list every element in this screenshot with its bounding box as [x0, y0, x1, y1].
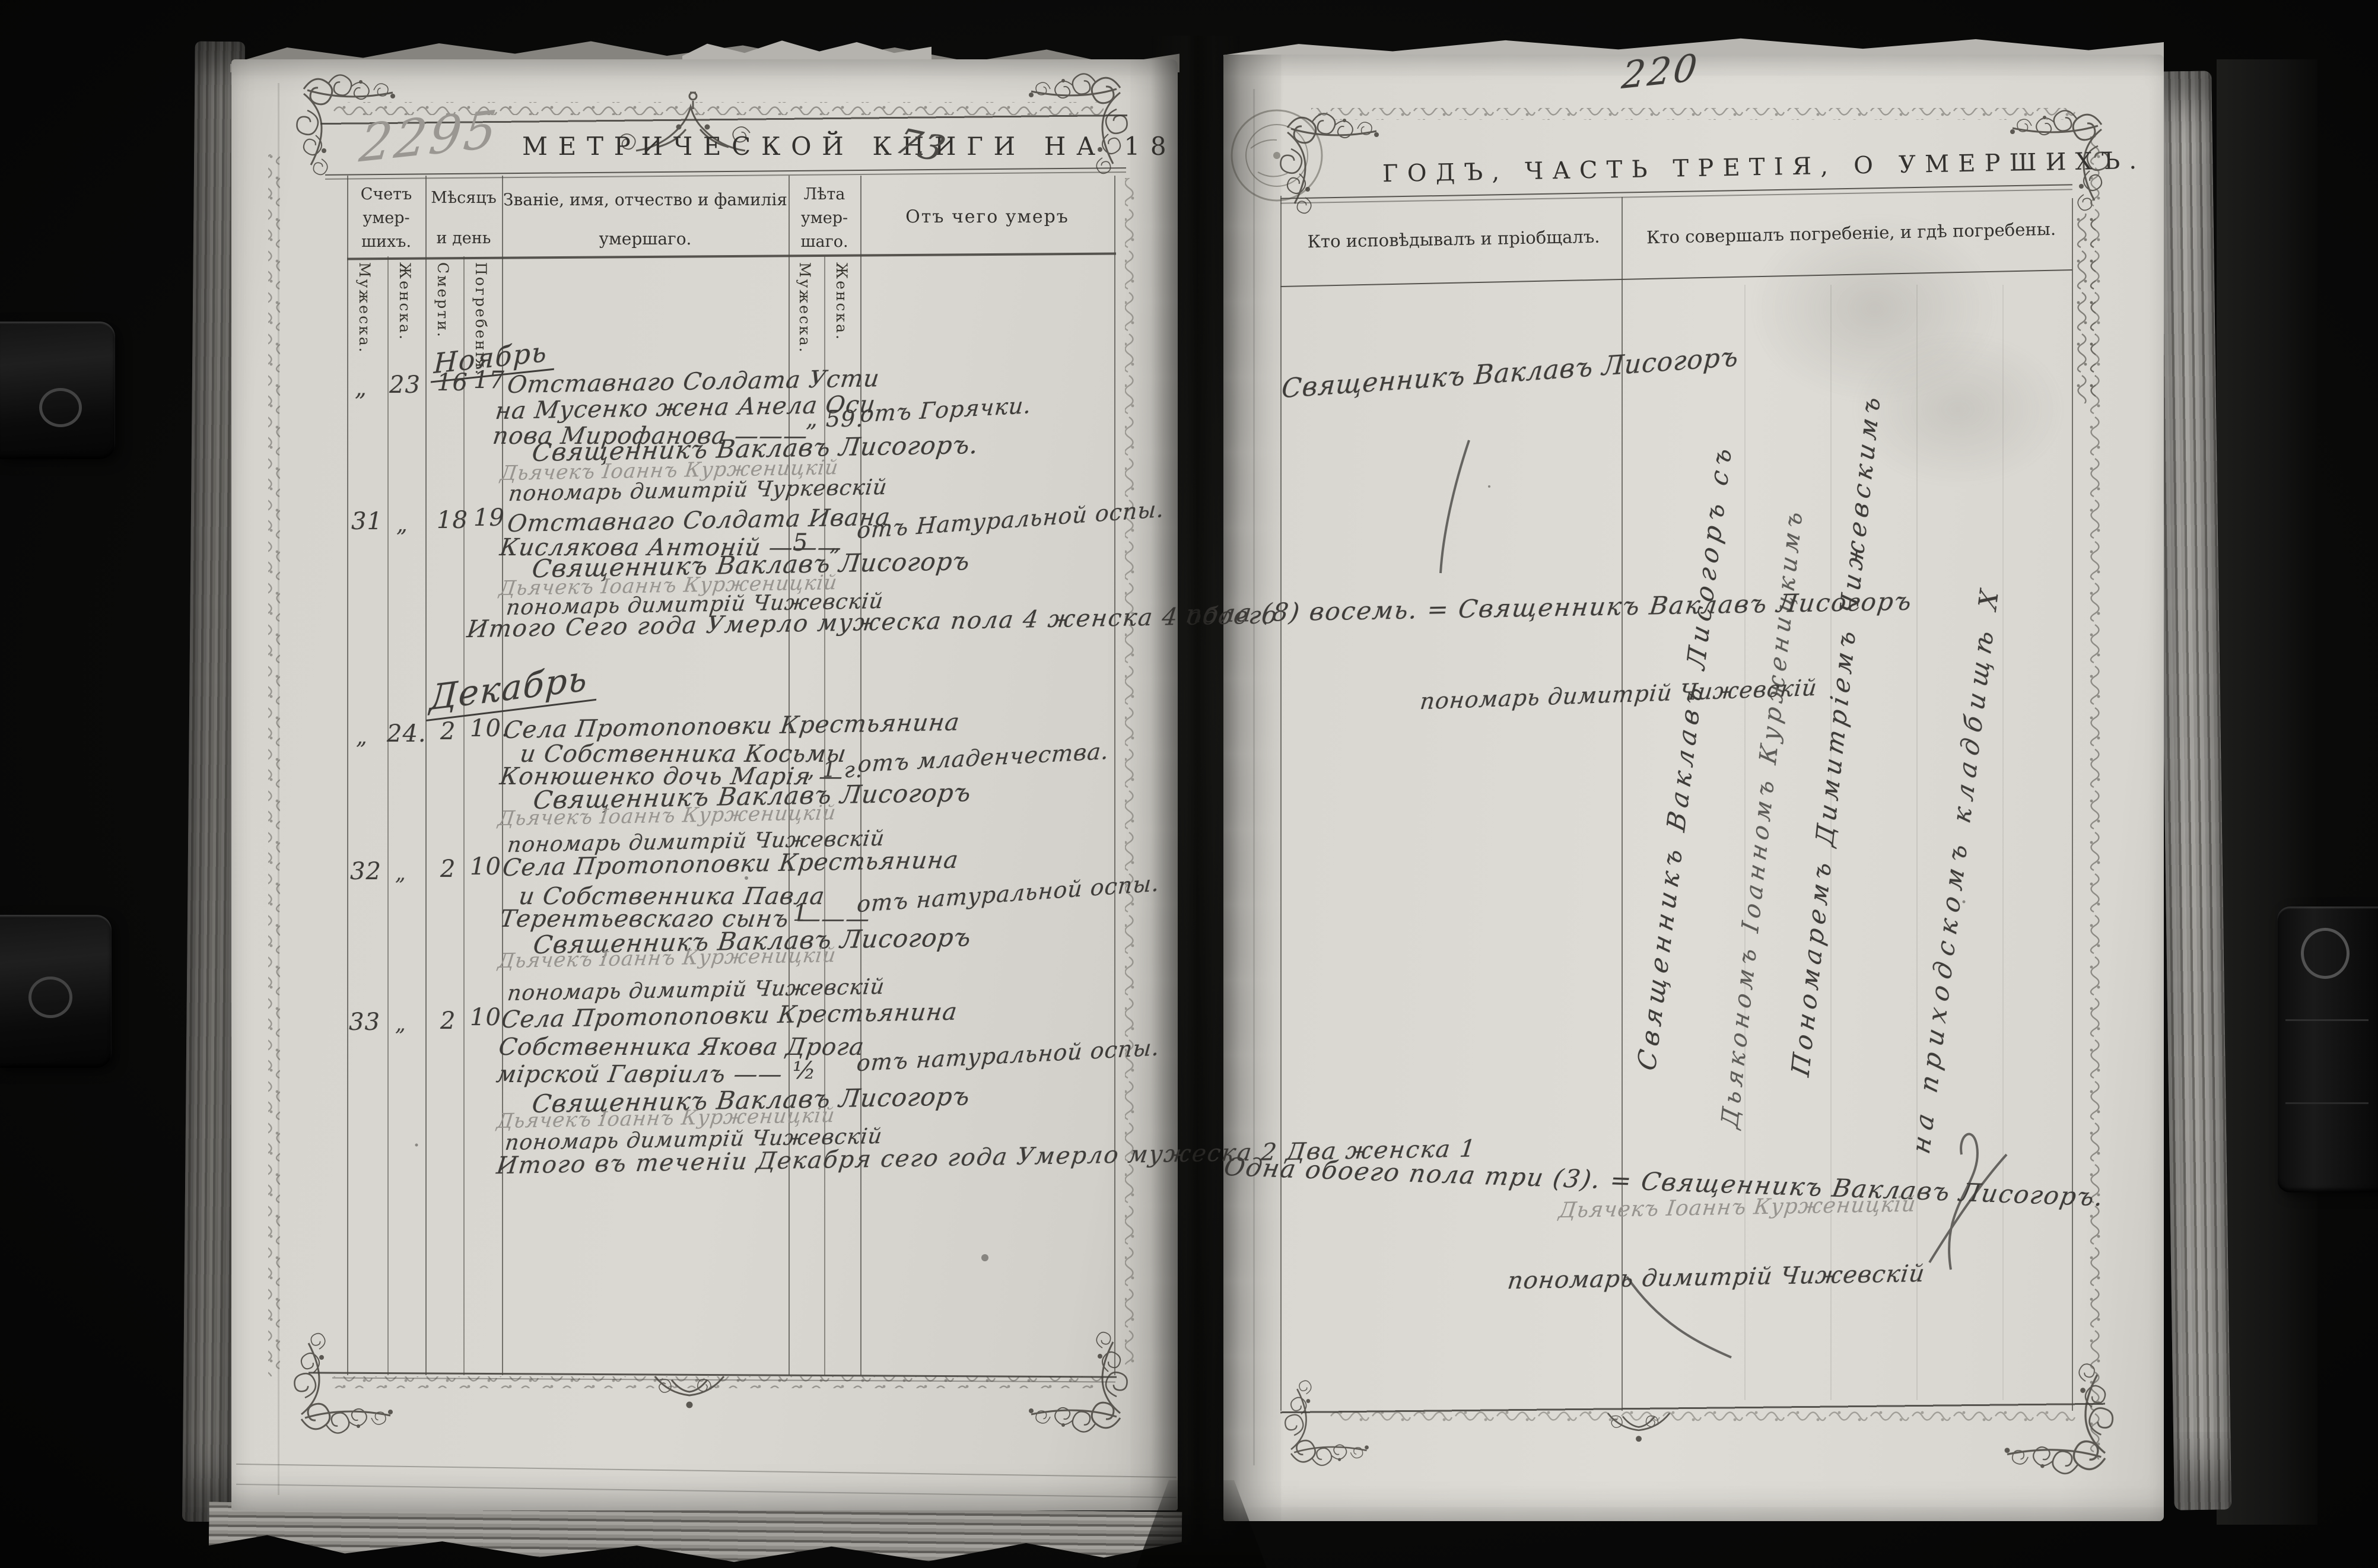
- r2-num-male: 31: [351, 508, 383, 535]
- metrical-book-scan: МЕТРИЧЕСКОЙ КНИГИ НА 18 73 2295 Счетъ ум…: [0, 0, 2378, 1568]
- r4-age-male: 1: [793, 899, 808, 927]
- column-rule: [347, 176, 348, 1375]
- r4-burial-day: 10: [470, 853, 501, 880]
- ghost-rule: [1744, 285, 1746, 1400]
- clip-ring: [39, 388, 82, 427]
- binder-clip-top-left: [0, 322, 115, 459]
- subcolumn-rule: [463, 256, 465, 1375]
- column-rule: [1280, 196, 1282, 1411]
- header-cause: Отъ чего умеръ: [860, 206, 1114, 227]
- r1-burial-day: 17: [473, 367, 505, 394]
- header-month-l1: Мѣсяцъ: [425, 189, 502, 207]
- clip-ring: [28, 977, 72, 1018]
- r2-burial-day: 19: [473, 504, 505, 532]
- header-name-l1: Званіе, имя, отчество и фамилія: [502, 190, 789, 209]
- column-rule: [2072, 198, 2073, 1411]
- header-count-l1: Счетъ: [347, 185, 425, 203]
- r3-age-female: „ 1 г.: [803, 758, 863, 783]
- r1-age-female: „ 59.: [806, 406, 863, 432]
- header-name-l2: умершаго.: [502, 229, 789, 249]
- r5-num-female: „: [395, 1012, 406, 1036]
- header-count-l2: умер-: [347, 209, 425, 227]
- subcolumn-rule: [387, 256, 389, 1375]
- r1-num-female: 23: [389, 371, 421, 399]
- r3-death-day: 2: [440, 718, 456, 745]
- clamp-groove: [2285, 1019, 2369, 1021]
- header-month-l2: и день: [425, 229, 502, 247]
- page-number: 220: [1620, 45, 1701, 97]
- r4-death-day: 2: [440, 855, 456, 883]
- clamp-right: [2277, 907, 2378, 1192]
- column-rule: [1114, 176, 1115, 1375]
- title-text: МЕТРИЧЕСКОЙ КНИГИ НА 18: [522, 132, 1177, 161]
- r2-num-female: „: [396, 513, 408, 537]
- r3-num-female: 24.: [387, 720, 427, 748]
- ghost-rule: [1916, 285, 1918, 1400]
- header-count-l3: шихъ.: [347, 233, 425, 251]
- r4-num-female: „: [395, 861, 406, 885]
- r1-num-male: „: [355, 375, 367, 401]
- ghost-rule: [2002, 285, 2004, 1400]
- r5-burial-day: 10: [470, 1004, 501, 1031]
- r5-line3: мірской Гавріилъ ——: [495, 1061, 784, 1088]
- sublabel-count-female: Женска.: [396, 262, 414, 387]
- clamp-groove: [2285, 1102, 2369, 1104]
- r3-num-male: „: [356, 725, 368, 749]
- r2-death-day: 18: [437, 507, 468, 534]
- r4-num-male: 32: [350, 858, 382, 885]
- clamp-ring: [2301, 928, 2350, 979]
- header-age-l3: шаго.: [789, 233, 860, 251]
- header-age-l1: Лѣта: [789, 185, 860, 203]
- r5-death-day: 2: [440, 1007, 456, 1035]
- left-page-title: МЕТРИЧЕСКОЙ КНИГИ НА 18: [522, 132, 902, 161]
- ink-stamp: [1232, 110, 1322, 201]
- r5-num-male: 33: [349, 1009, 380, 1036]
- column-rule: [425, 176, 427, 1375]
- r5-age-male: ½: [793, 1057, 816, 1084]
- binder-clip-bottom-left: [0, 915, 112, 1068]
- r1-death-day: 16: [437, 369, 468, 396]
- header-age-l2: умер-: [789, 209, 860, 227]
- sublabel-count-male: Мужеска.: [356, 262, 373, 387]
